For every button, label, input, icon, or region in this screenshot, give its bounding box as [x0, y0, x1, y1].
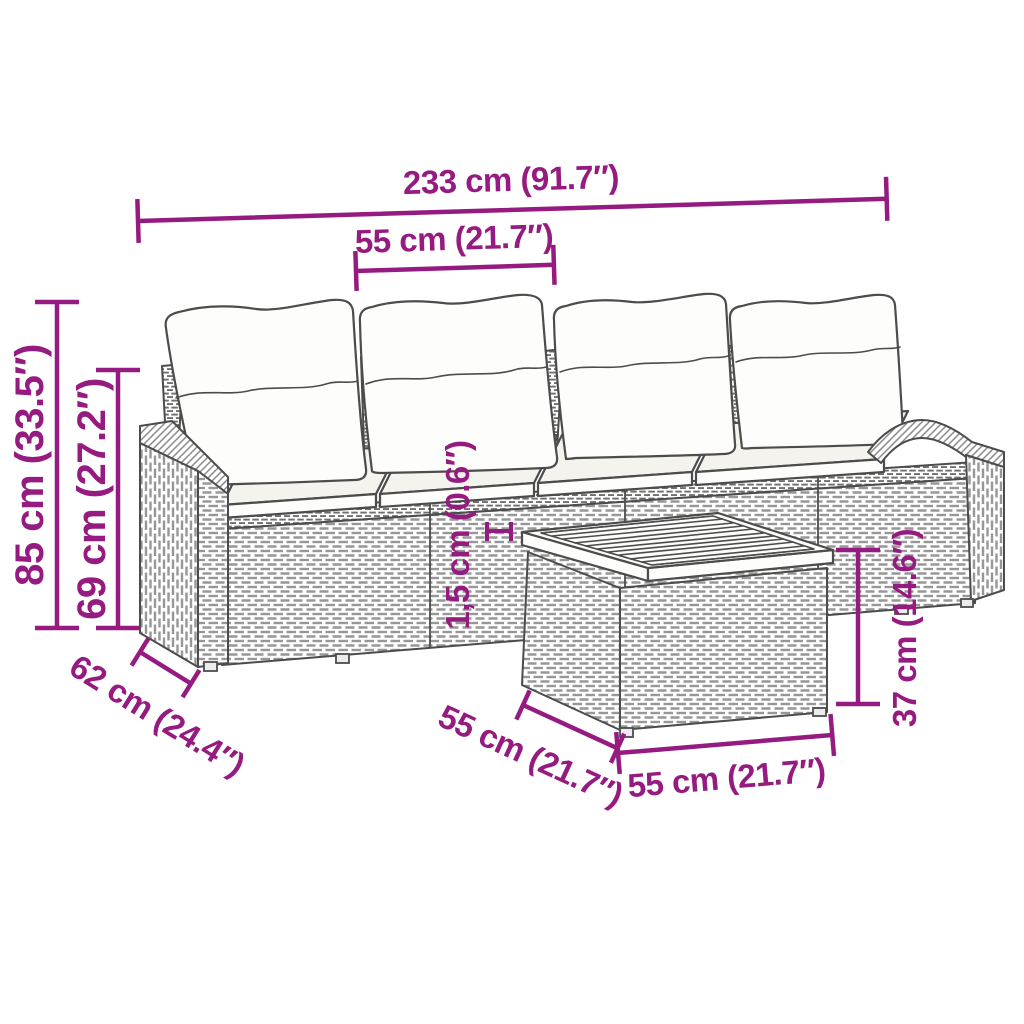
dim-seat-width-label: 55 cm (21.7″) — [354, 217, 553, 260]
dim-slat-thickness-label: 1,5 cm (0.6″) — [439, 440, 476, 629]
dim-table-height-label: 37 cm (14.6″) — [886, 529, 923, 727]
dim-overall-height-label: 85 cm (33.5″) — [8, 344, 52, 586]
dim-overall-height: 85 cm (33.5″) — [8, 302, 79, 628]
dim-depth-label: 62 cm (24.4″) — [63, 647, 251, 783]
sofa-set-illustration: 233 cm (91.7″) 55 cm (21.7″) 85 cm (33.5… — [0, 0, 1024, 1024]
side-table — [522, 513, 833, 737]
dim-table-width-label: 55 cm (21.7″) — [626, 751, 827, 804]
dim-overall-width-label: 233 cm (91.7″) — [402, 158, 619, 201]
product-dimension-diagram: 233 cm (91.7″) 55 cm (21.7″) 85 cm (33.5… — [0, 0, 1024, 1024]
dim-back-height: 69 cm (27.2″) — [70, 370, 140, 628]
dim-seat-width: 55 cm (21.7″) — [354, 217, 554, 291]
back-pillow — [554, 294, 735, 459]
dim-back-height-label: 69 cm (27.2″) — [70, 378, 114, 620]
back-pillow — [730, 295, 903, 449]
